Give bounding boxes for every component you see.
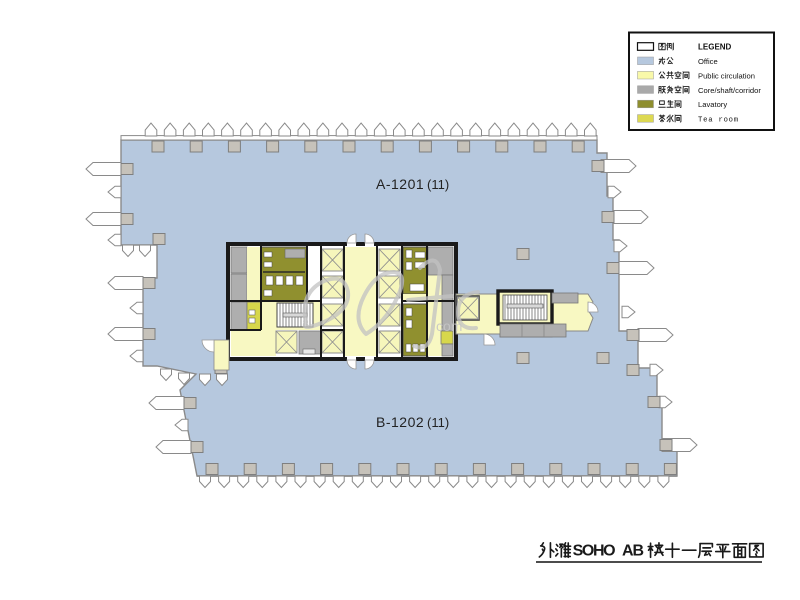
svg-text:Public circulation: Public circulation <box>698 71 755 80</box>
svg-text:B-1202: B-1202 <box>376 414 424 430</box>
svg-text:Office: Office <box>698 57 718 66</box>
svg-text:Core/shaft/corridor: Core/shaft/corridor <box>698 86 761 95</box>
svg-text:LEGEND: LEGEND <box>698 43 732 52</box>
svg-text:(11): (11) <box>427 177 449 192</box>
svg-text:Lavatory: Lavatory <box>698 100 727 109</box>
svg-text:Tea room: Tea room <box>698 117 739 125</box>
svg-text:SOHO: SOHO <box>573 543 616 560</box>
svg-text:A-1201: A-1201 <box>376 176 424 192</box>
svg-text:(11): (11) <box>427 415 449 430</box>
svg-text:com: com <box>436 318 462 334</box>
svg-text:AB: AB <box>622 543 644 560</box>
